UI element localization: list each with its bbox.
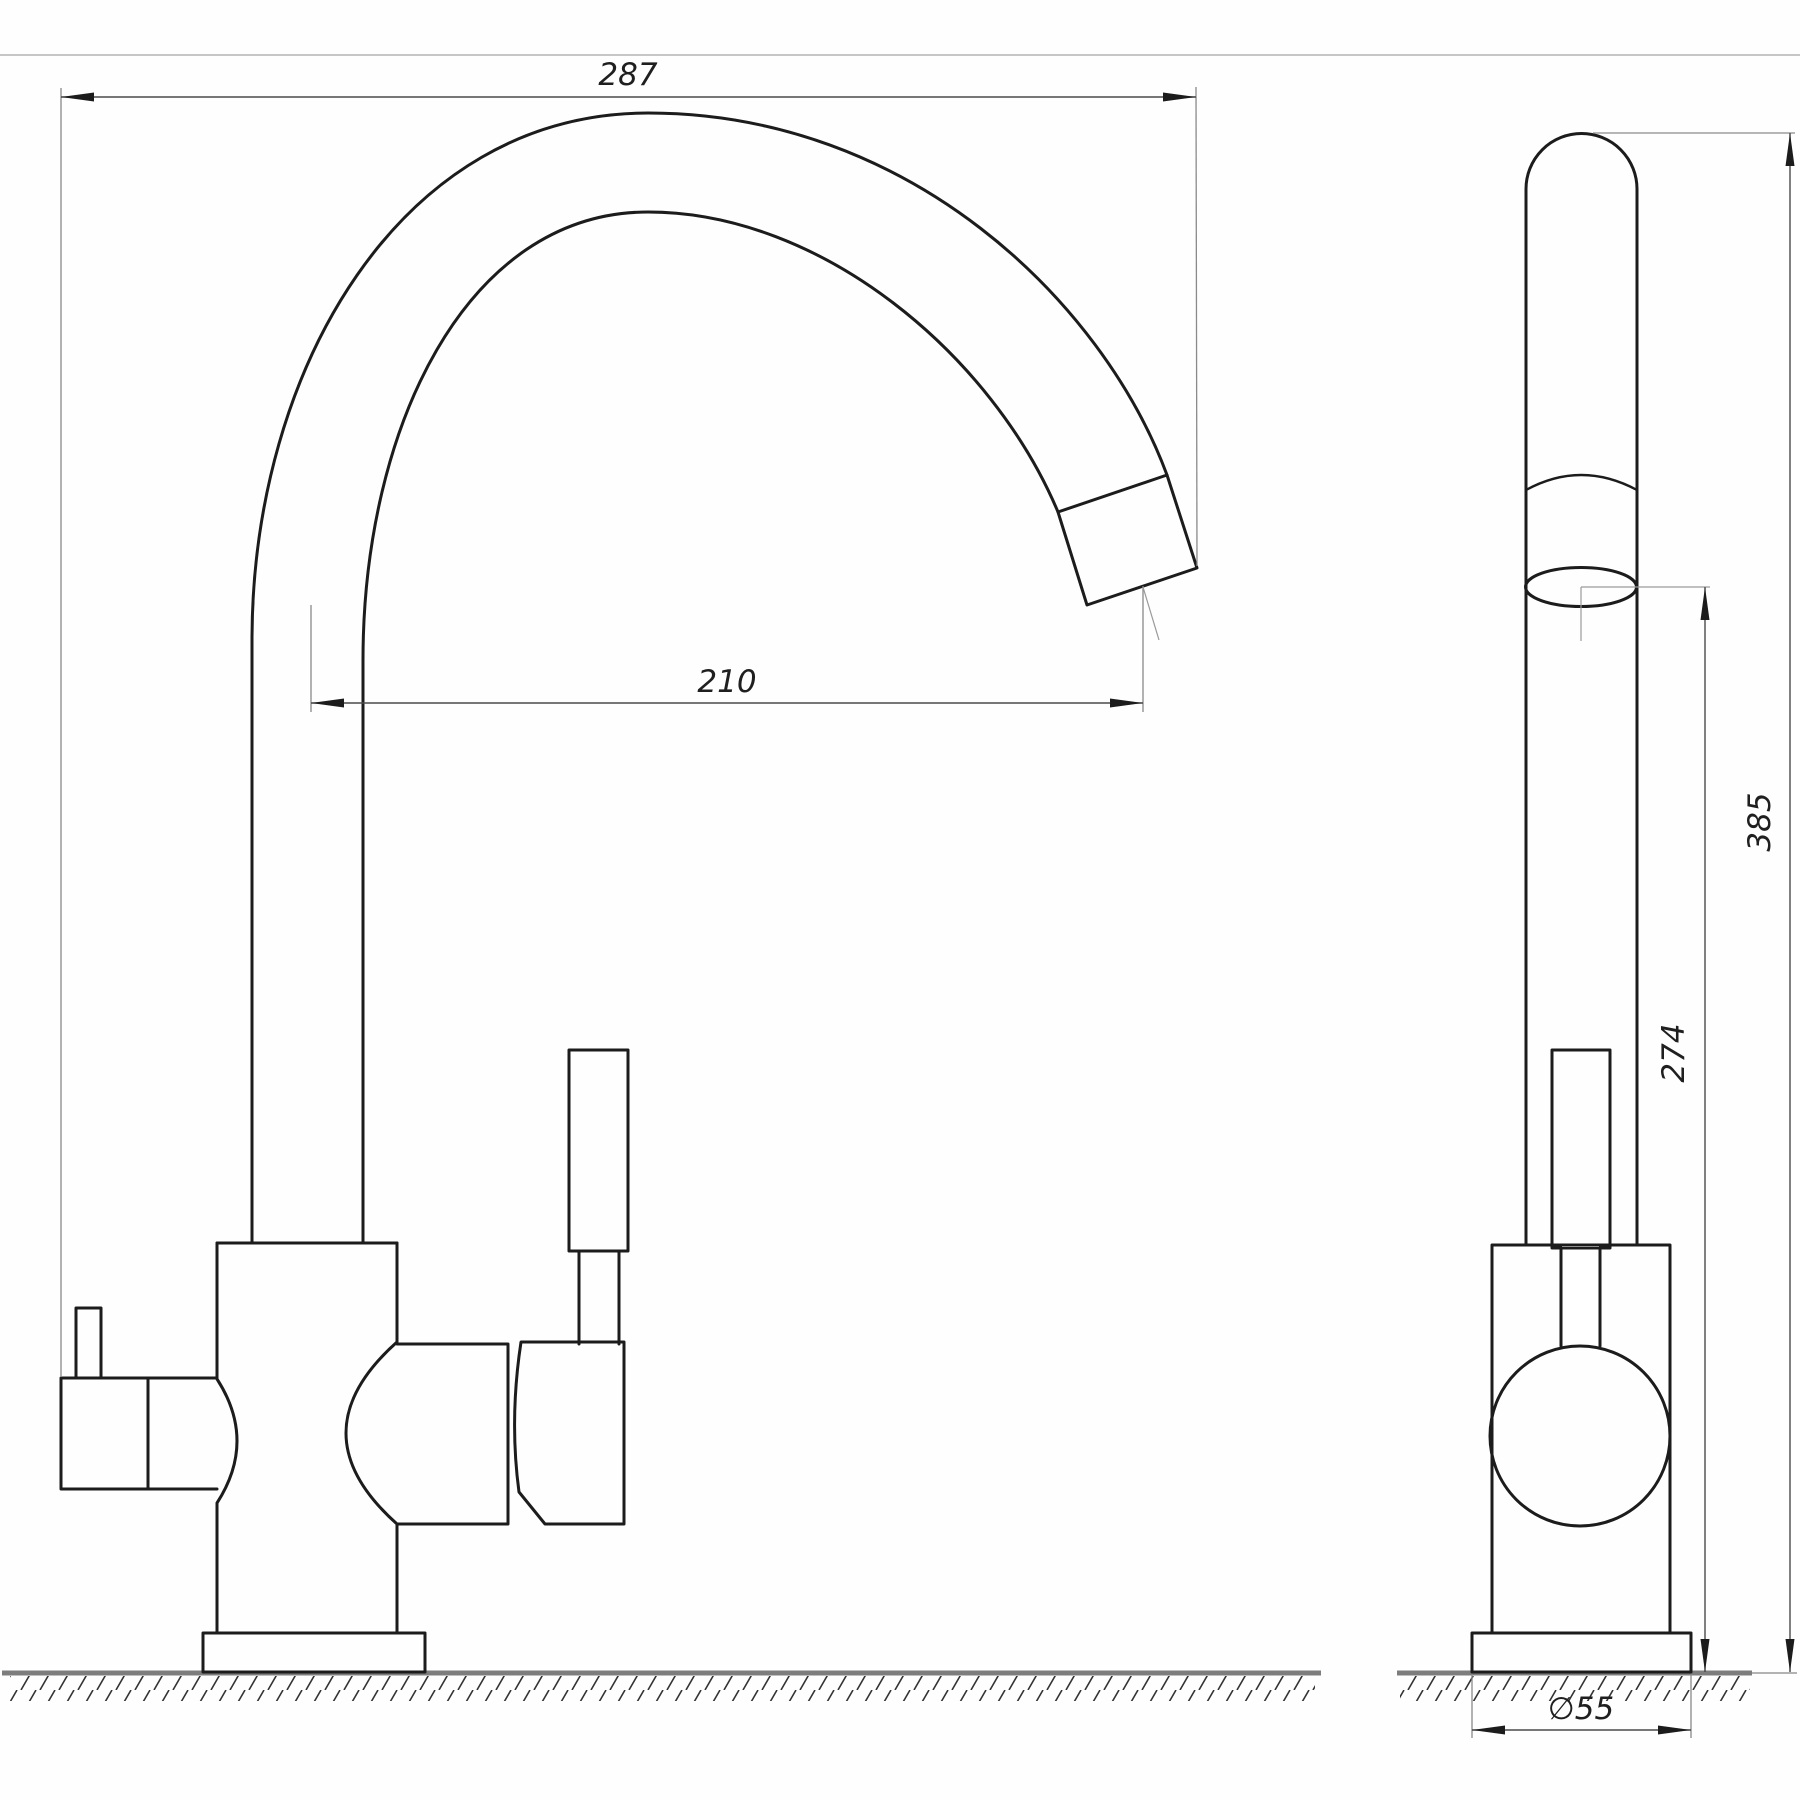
arrow-right <box>1658 1726 1691 1735</box>
arrow-right <box>1163 93 1196 102</box>
dimension-spout-reach: 210 <box>311 586 1159 712</box>
dim-spout-outlet-height-label: 274 <box>1656 1023 1692 1082</box>
arrow-top <box>1701 587 1710 620</box>
arrow-right <box>1110 699 1143 708</box>
arrow-bottom <box>1701 1639 1710 1672</box>
left-handle-stem <box>76 1308 101 1378</box>
arrow-left <box>1472 1726 1505 1735</box>
side-lever-stem-fill <box>1562 1246 1599 1345</box>
spout-tip-aerator <box>1058 475 1197 605</box>
base-flange-front <box>203 1633 425 1672</box>
right-valve-housing <box>397 1344 508 1524</box>
arrow-top <box>1786 133 1795 166</box>
right-valve-cap <box>515 1342 624 1524</box>
dim-base-diameter-label: ∅55 <box>1548 1691 1614 1727</box>
body-right-edge <box>346 1243 397 1633</box>
side-view <box>1397 134 1797 1702</box>
ground-hatching-front <box>10 1676 1315 1701</box>
arrow-left <box>311 699 344 708</box>
cartridge-sphere <box>1490 1346 1670 1526</box>
dimension-overall-height: 385 <box>1593 133 1795 1672</box>
ext-line-right <box>1196 87 1197 566</box>
body-left-edge <box>217 1243 237 1633</box>
dimension-spout-outlet-height: 274 <box>1581 587 1710 1672</box>
faucet-technical-drawing: 287 210 385 274 ∅55 <box>0 0 1800 1800</box>
drawing-sheet: 287 210 385 274 ∅55 <box>0 0 1800 1800</box>
arrow-bottom <box>1786 1639 1795 1672</box>
dim-spout-reach-label: 210 <box>697 664 756 700</box>
front-lever-stem <box>579 1251 619 1344</box>
riser-pipe <box>1526 134 1637 1246</box>
side-lever-handle <box>1552 1050 1610 1248</box>
spout-inner-curve <box>363 212 1058 1243</box>
dim-overall-width-label: 287 <box>598 57 657 93</box>
dim-overall-height-label: 385 <box>1742 792 1778 851</box>
ext-tick-spout-mouth <box>1143 587 1159 640</box>
base-flange-side <box>1472 1633 1691 1672</box>
spout-collar-seam <box>1526 475 1637 490</box>
left-valve-block <box>61 1378 148 1489</box>
front-lever-handle <box>569 1050 628 1251</box>
front-view <box>2 113 1321 1701</box>
arrow-left <box>61 93 94 102</box>
